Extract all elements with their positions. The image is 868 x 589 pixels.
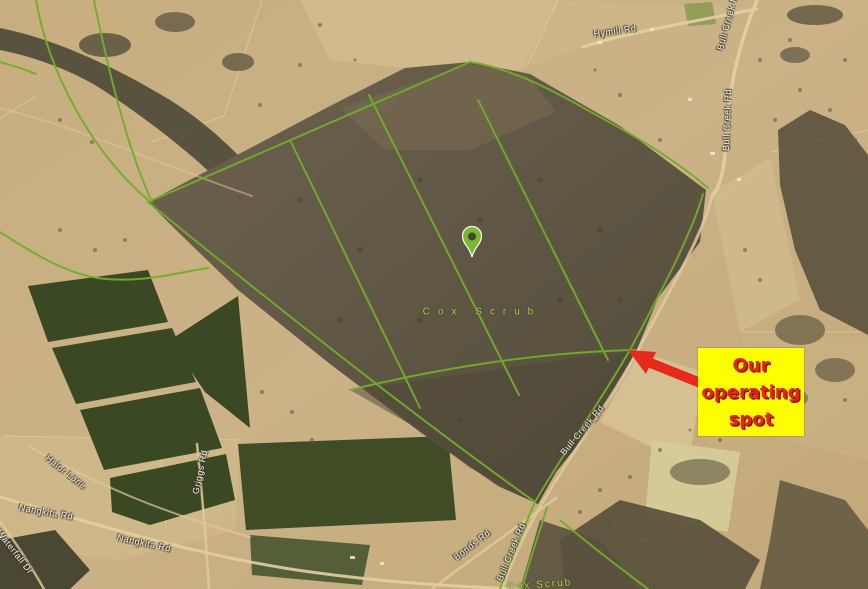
pin-hole bbox=[468, 233, 476, 241]
aerial-imagery bbox=[0, 0, 868, 589]
satellite-map[interactable]: Hymill RdBull Creek RdBull Creek RdBull … bbox=[0, 0, 868, 589]
